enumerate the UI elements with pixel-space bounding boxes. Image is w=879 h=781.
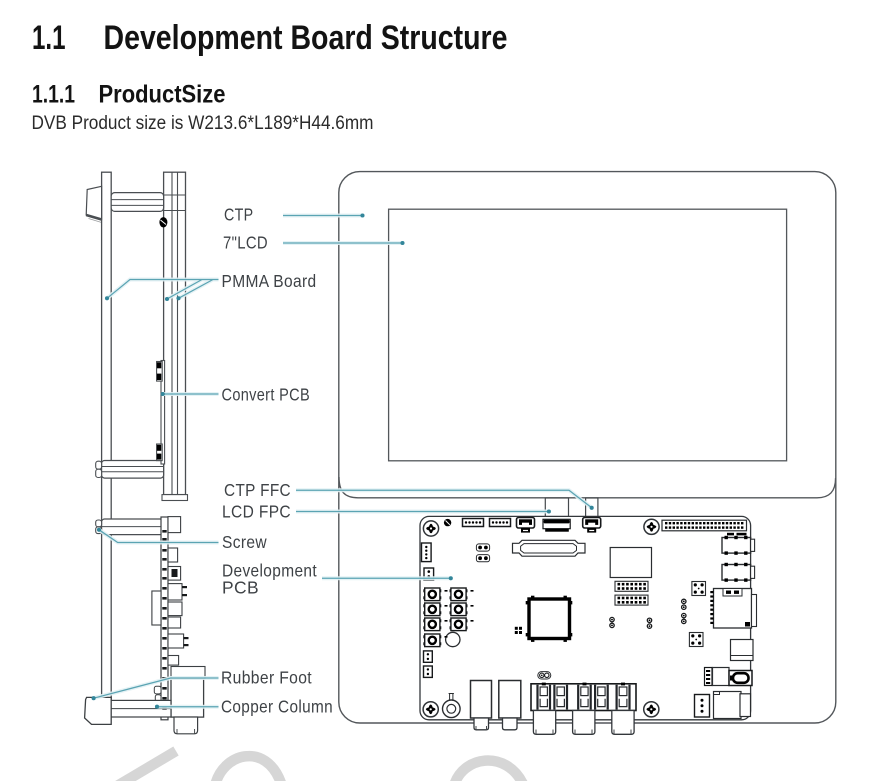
svg-text:LCD FPC: LCD FPC xyxy=(222,502,291,522)
svg-text:1.1: 1.1 xyxy=(32,19,66,57)
svg-text:CTP FFC: CTP FFC xyxy=(224,480,291,500)
svg-text:PMMA Board: PMMA Board xyxy=(222,271,317,291)
svg-text:Screw: Screw xyxy=(222,532,267,552)
svg-text:Convert PCB: Convert PCB xyxy=(222,385,311,405)
svg-text:CTP: CTP xyxy=(224,205,254,225)
svg-text:Rubber Foot: Rubber Foot xyxy=(221,668,312,688)
svg-text:Development Board Structure: Development Board Structure xyxy=(104,19,508,57)
svg-text:1.1.1: 1.1.1 xyxy=(32,81,75,109)
svg-text:ProductSize: ProductSize xyxy=(99,81,226,109)
svg-text:DVB Product size is W213.6*L18: DVB Product size is W213.6*L189*H44.6mm xyxy=(32,112,374,134)
svg-text:PCB: PCB xyxy=(222,578,259,598)
svg-text:Copper Column: Copper Column xyxy=(221,697,333,717)
svg-text:7"LCD: 7"LCD xyxy=(223,233,268,253)
